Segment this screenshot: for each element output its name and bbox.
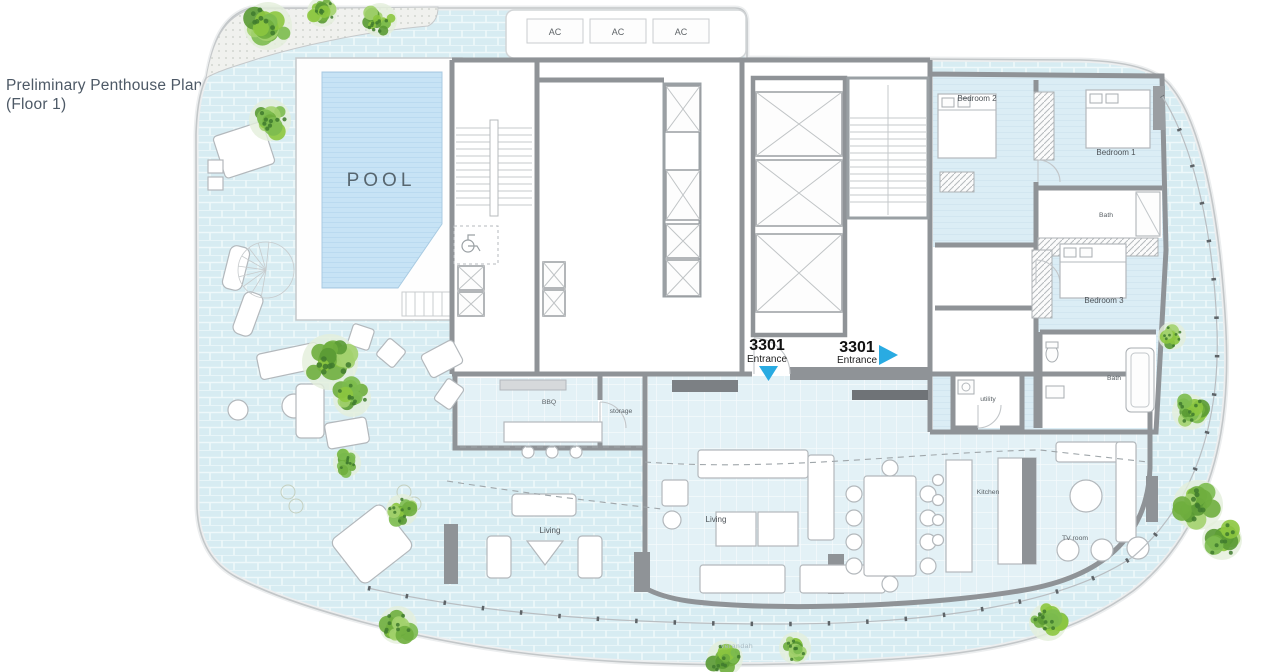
dining-chair-icon xyxy=(846,486,862,502)
entrance-2-number: 3301 xyxy=(839,339,875,356)
room-label-living-indoor: Living xyxy=(706,515,727,524)
elevator-shaft-icon xyxy=(666,86,700,132)
elevator-shaft-icon xyxy=(756,160,842,226)
bbq-counter-icon xyxy=(500,380,566,390)
entrance-1-number: 3301 xyxy=(749,337,785,354)
elevator-shaft-icon xyxy=(666,170,700,220)
coffee-table-icon xyxy=(758,512,798,546)
sofa-icon xyxy=(700,565,785,593)
elevator-shaft-icon xyxy=(666,260,700,296)
ac-label-3: AC xyxy=(675,27,688,37)
elevator-shaft-icon xyxy=(756,92,842,156)
elevator-shaft-icon xyxy=(543,262,565,288)
bed-icon xyxy=(1086,90,1150,148)
outdoor-sofa-icon xyxy=(512,494,576,516)
room-label-living-outdoor: Living xyxy=(540,526,561,535)
stool-icon xyxy=(933,515,944,526)
floor-plan-page: Preliminary Penthouse Plan (Floor 1) xyxy=(0,0,1280,672)
stool-icon xyxy=(933,535,944,546)
armchair-icon xyxy=(1127,537,1149,559)
room-label-verandah: verandah xyxy=(721,643,753,650)
toilet-tank xyxy=(1046,342,1058,348)
stool-icon xyxy=(570,446,582,458)
tree-icon xyxy=(1202,520,1242,560)
dining-chair-icon xyxy=(920,558,936,574)
pool-steps xyxy=(402,292,450,316)
outdoor-chair-icon xyxy=(208,160,223,173)
armchair-icon xyxy=(1057,539,1079,561)
outdoor-chair-icon xyxy=(208,177,223,190)
elevator-shaft-icon xyxy=(458,266,484,290)
chaise-icon xyxy=(296,384,324,438)
dining-chair-icon xyxy=(846,534,862,550)
kitchen-counter-dark xyxy=(1022,458,1036,564)
closet-dark xyxy=(1153,86,1165,130)
room-label-kitchen: Kitchen xyxy=(977,489,1000,496)
outdoor-table-icon xyxy=(228,400,248,420)
sink-icon xyxy=(1046,386,1064,398)
entrance-1-label: Entrance xyxy=(747,354,787,365)
elevator-shaft-icon xyxy=(543,290,565,316)
armchair-icon xyxy=(662,480,688,506)
stool-icon xyxy=(933,475,944,486)
room-label-bath-upper: Bath xyxy=(1099,212,1113,219)
pier xyxy=(1146,476,1158,522)
room-label-storage: storage xyxy=(610,408,633,415)
closet xyxy=(940,172,974,192)
room-label-utility: utility xyxy=(980,396,996,403)
closet xyxy=(1034,92,1054,160)
room-label-bath-lower: Bath xyxy=(1107,375,1121,382)
round-table-icon xyxy=(1070,480,1102,512)
pier xyxy=(444,524,458,584)
entrance-wall xyxy=(790,367,932,380)
pier xyxy=(634,552,650,592)
room-label-bbq: BBQ xyxy=(542,399,556,406)
washer-icon xyxy=(958,380,974,394)
outdoor-chair-icon xyxy=(487,536,511,578)
pool-area: POOL xyxy=(296,58,462,320)
sofa-icon xyxy=(1116,442,1136,542)
ac-label-1: AC xyxy=(549,27,562,37)
dining-chair-icon xyxy=(882,576,898,592)
tree-icon xyxy=(779,632,811,664)
elevator-shaft-icon xyxy=(756,234,842,312)
sofa-icon xyxy=(808,455,834,540)
stool-icon xyxy=(546,446,558,458)
tree-icon xyxy=(1158,322,1186,350)
room-label-bedroom-1: Bedroom 1 xyxy=(1096,148,1136,157)
room-label-bedroom-2: Bedroom 2 xyxy=(957,94,997,103)
floor-plan-svg: POOL AC AC AC xyxy=(0,0,1280,672)
room-label-tv-room: TV room xyxy=(1062,535,1088,542)
bbq-island-icon xyxy=(504,422,602,442)
entrance-2-label: Entrance xyxy=(837,355,877,366)
stool-icon xyxy=(933,495,944,506)
sofa-icon xyxy=(698,450,808,478)
ac-label-2: AC xyxy=(612,27,625,37)
ac-block: AC AC AC xyxy=(506,10,746,58)
dining-table-icon xyxy=(864,476,916,576)
bathtub-icon xyxy=(1126,348,1154,412)
tree-icon xyxy=(249,99,291,141)
room-label-bedroom-3: Bedroom 3 xyxy=(1084,296,1124,305)
room-label-pool: POOL xyxy=(347,170,416,191)
elevator-shaft-icon xyxy=(666,224,700,258)
elevator-shaft-icon xyxy=(458,292,484,316)
armchair-icon xyxy=(1091,539,1113,561)
bed-icon xyxy=(1060,244,1126,298)
kitchen-island-icon xyxy=(946,460,972,572)
dining-chair-icon xyxy=(846,558,862,574)
dining-chair-icon xyxy=(882,460,898,476)
stool-icon xyxy=(522,446,534,458)
side-table-icon xyxy=(663,511,681,529)
dark-wall-segment xyxy=(852,390,928,400)
outdoor-chair-icon xyxy=(578,536,602,578)
media-wall xyxy=(672,380,738,392)
dining-chair-icon xyxy=(846,510,862,526)
bed-icon xyxy=(938,94,996,158)
